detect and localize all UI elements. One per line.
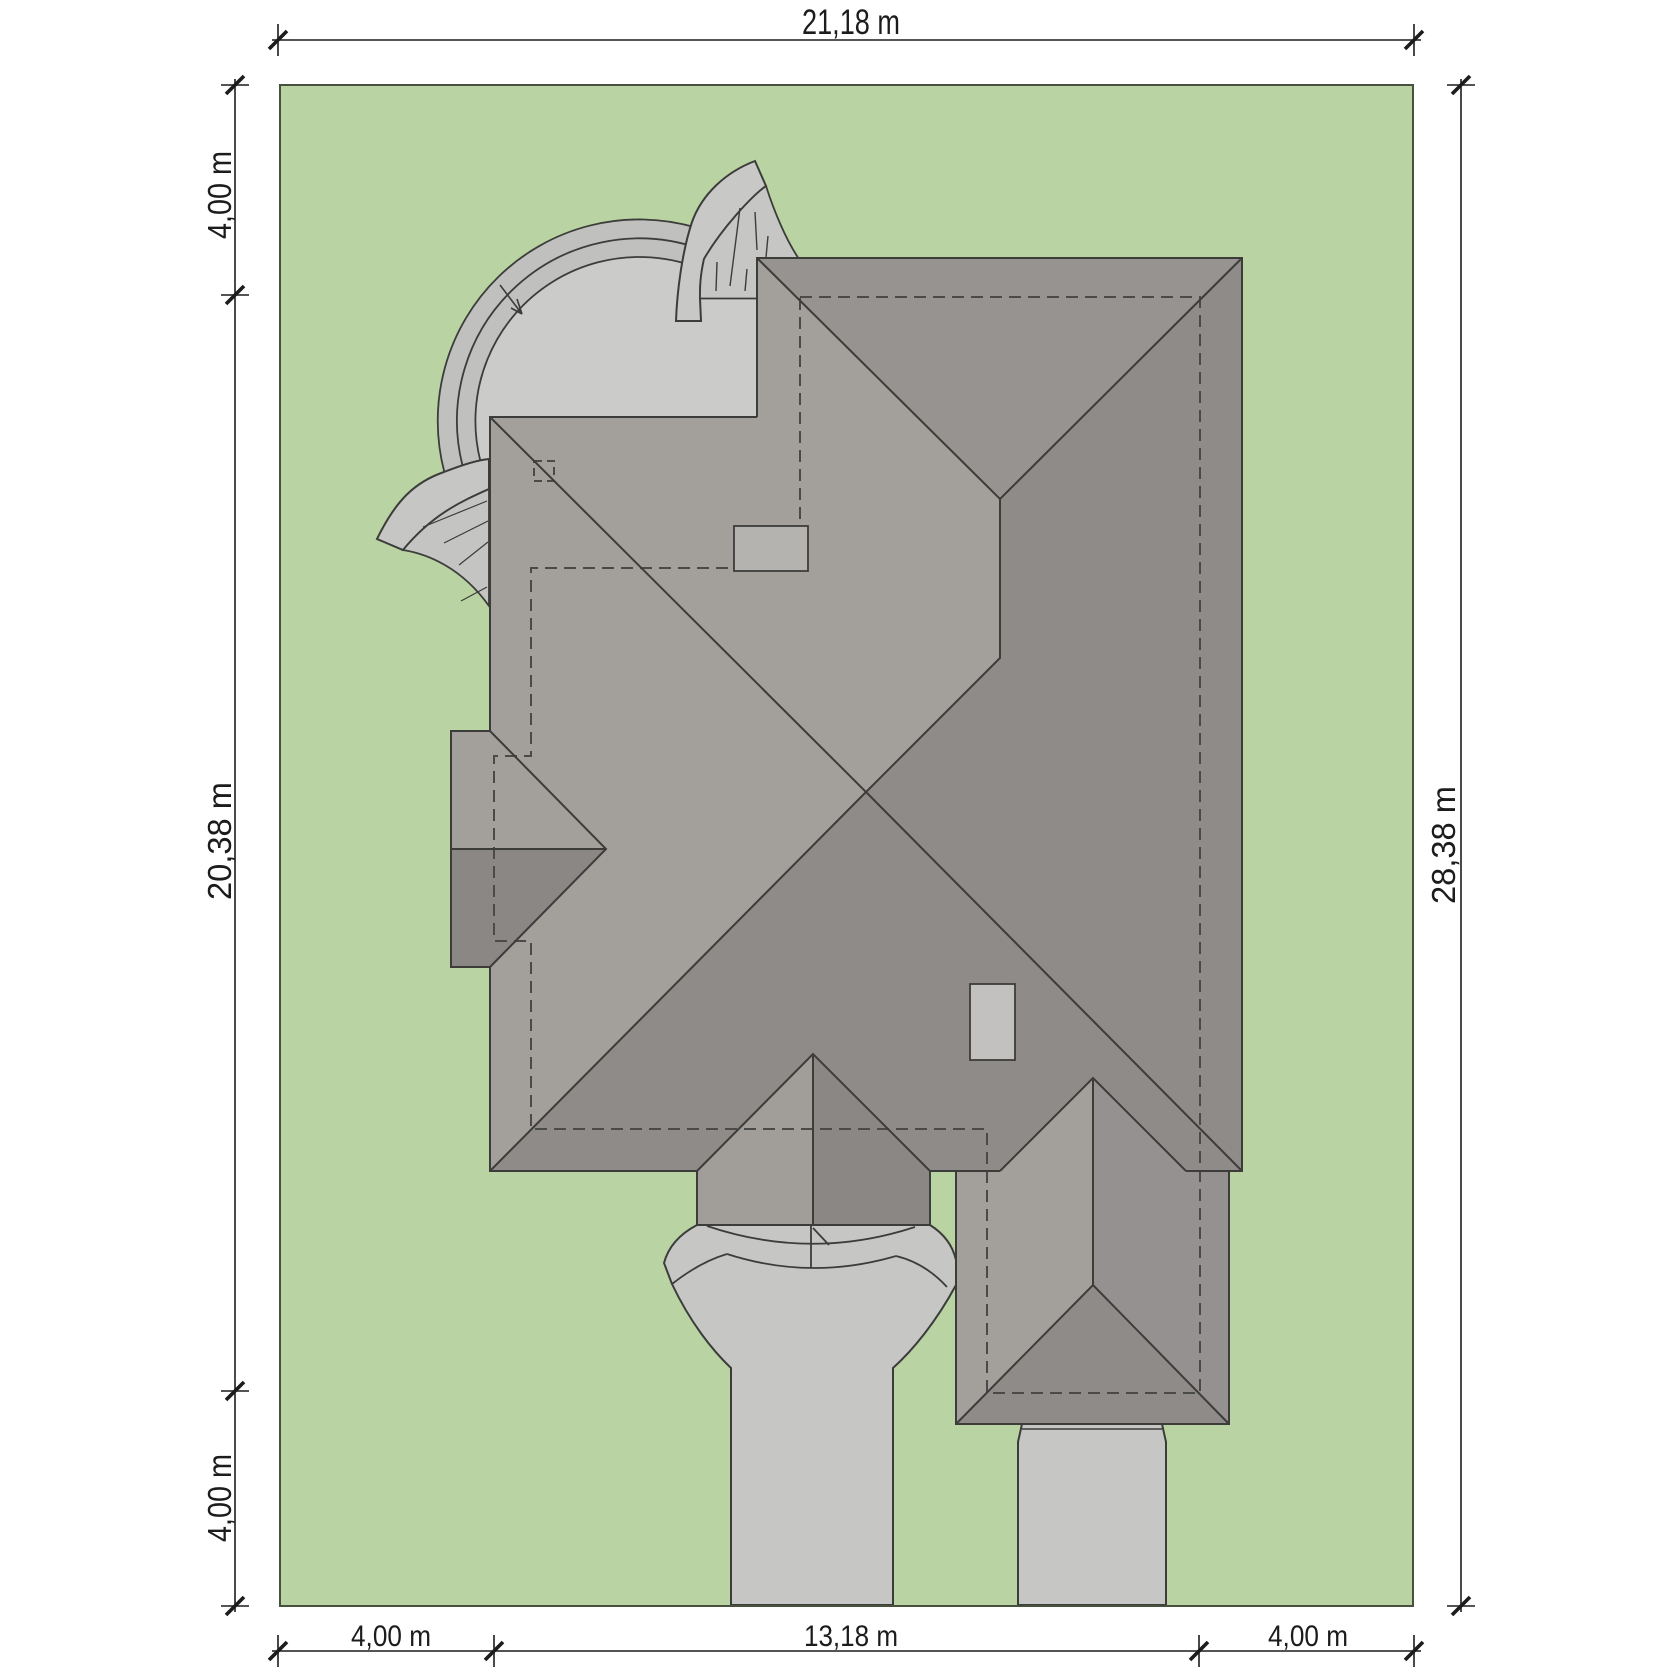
svg-text:4,00 m: 4,00 m <box>351 1620 431 1653</box>
svg-text:13,18 m: 13,18 m <box>804 1620 898 1653</box>
svg-text:20,38 m: 20,38 m <box>201 782 238 900</box>
svg-text:4,00 m: 4,00 m <box>1268 1620 1348 1653</box>
svg-text:4,00 m: 4,00 m <box>201 151 238 239</box>
svg-text:21,18 m: 21,18 m <box>802 3 900 42</box>
svg-text:4,00 m: 4,00 m <box>201 1454 238 1542</box>
svg-text:28,38 m: 28,38 m <box>1425 786 1462 904</box>
